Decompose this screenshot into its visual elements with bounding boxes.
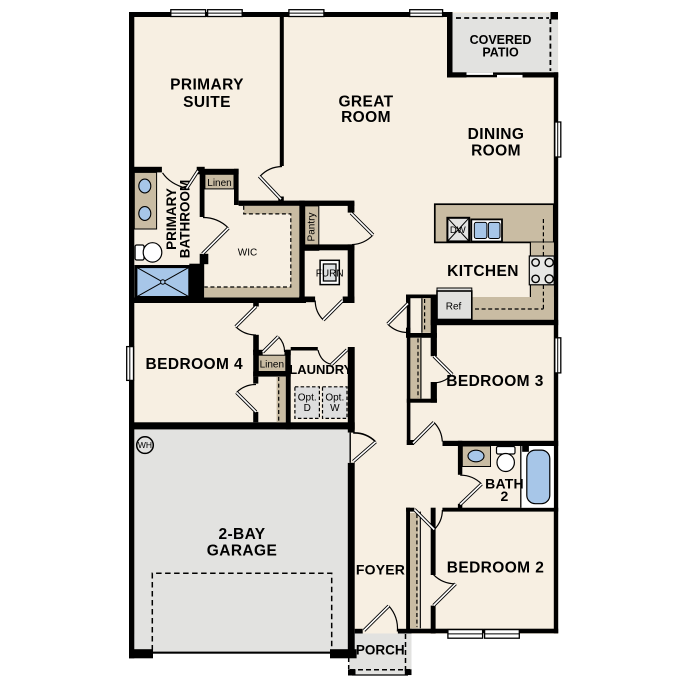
svg-text:PORCH: PORCH <box>356 643 405 658</box>
svg-text:WIC: WIC <box>238 248 257 259</box>
svg-text:ROOM: ROOM <box>341 109 391 126</box>
svg-text:DW: DW <box>450 225 466 236</box>
svg-text:Opt.: Opt. <box>298 393 317 404</box>
svg-text:FOYER: FOYER <box>356 562 405 578</box>
svg-text:2-BAY: 2-BAY <box>218 526 265 543</box>
svg-text:BEDROOM 2: BEDROOM 2 <box>447 560 544 577</box>
svg-text:W: W <box>330 403 340 414</box>
svg-text:Linen: Linen <box>207 178 231 189</box>
svg-text:Opt.: Opt. <box>325 393 344 404</box>
svg-text:BEDROOM 3: BEDROOM 3 <box>446 373 543 390</box>
svg-text:2: 2 <box>501 488 509 504</box>
svg-text:FURN: FURN <box>316 269 344 280</box>
svg-text:KITCHEN: KITCHEN <box>447 263 519 280</box>
svg-text:PRIMARY: PRIMARY <box>170 77 244 94</box>
svg-text:Linen: Linen <box>260 359 284 370</box>
svg-text:D: D <box>304 403 311 414</box>
svg-text:DINING: DINING <box>468 126 525 143</box>
svg-text:GREAT: GREAT <box>338 94 393 111</box>
svg-text:PATIO: PATIO <box>482 46 519 60</box>
svg-text:WH: WH <box>138 440 152 450</box>
svg-text:LAUNDRY: LAUNDRY <box>289 362 352 377</box>
svg-text:SUITE: SUITE <box>183 94 231 111</box>
svg-text:ROOM: ROOM <box>471 143 521 160</box>
svg-text:BEDROOM 4: BEDROOM 4 <box>146 356 243 373</box>
svg-text:GARAGE: GARAGE <box>207 543 277 560</box>
svg-text:BATHROOM: BATHROOM <box>178 180 193 259</box>
svg-text:Pantry: Pantry <box>307 213 318 242</box>
svg-text:Ref: Ref <box>446 302 462 313</box>
